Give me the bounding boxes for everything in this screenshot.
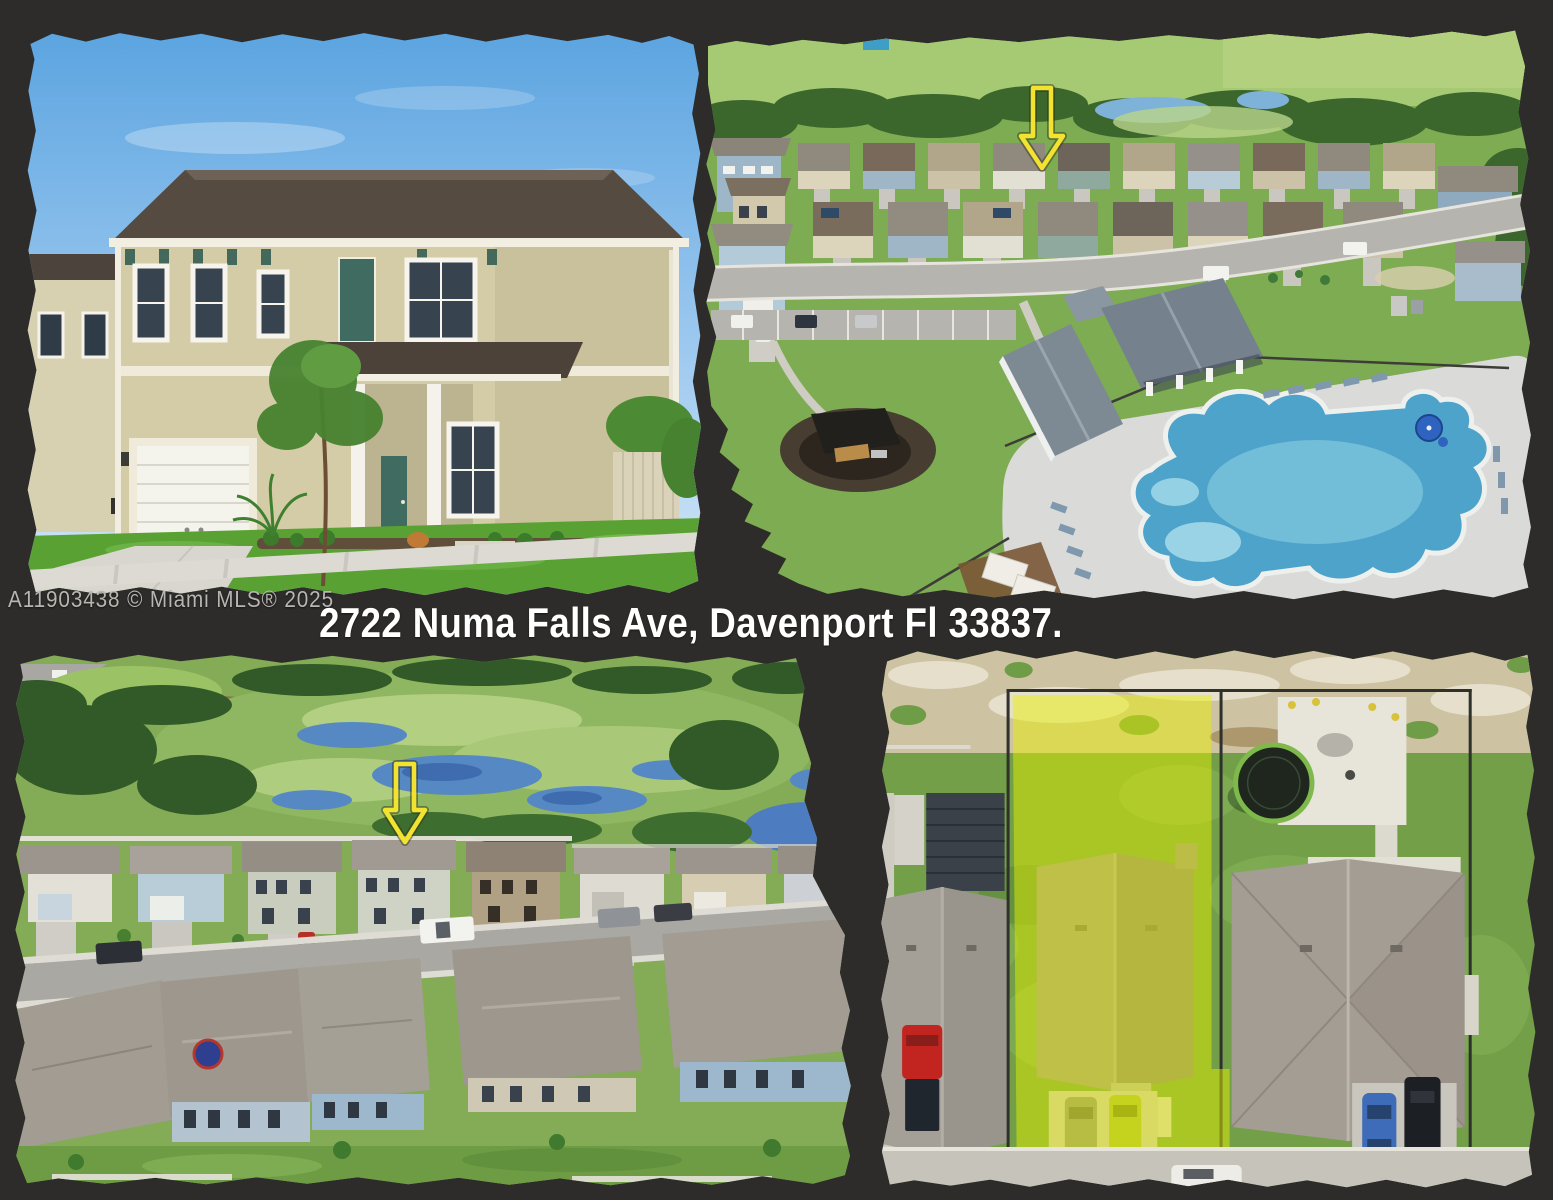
aerial-community-illustration (703, 26, 1535, 602)
aerial-wetland-illustration (12, 650, 855, 1188)
mls-watermark: A11903438 © Miami MLS® 2025 (8, 586, 334, 613)
address-banner: 2722 Numa Falls Ave, Davenport Fl 33837. (319, 599, 1063, 647)
aerial-lot-illustration (878, 645, 1538, 1190)
photo-aerial-lot-highlighted (878, 645, 1538, 1190)
lot-highlight-overlay (1013, 695, 1230, 1153)
photo-aerial-wetland (12, 650, 855, 1188)
photo-front-exterior (25, 28, 703, 598)
photo-aerial-community-pool (703, 26, 1535, 602)
listing-collage: A11903438 © Miami MLS® 2025 2722 Numa Fa… (0, 0, 1553, 1200)
front-exterior-illustration (25, 28, 703, 598)
